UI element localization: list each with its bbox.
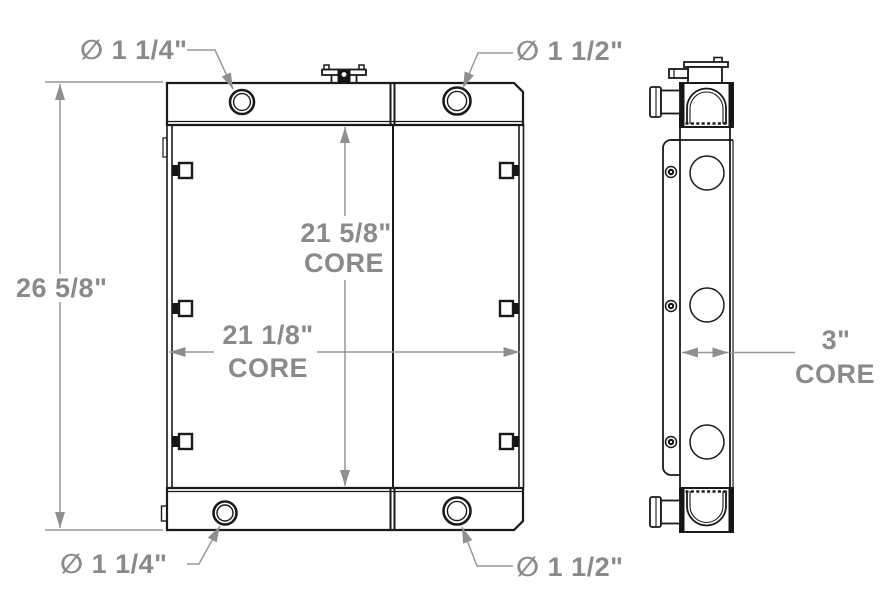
lightening-hole (690, 156, 724, 190)
core-height-word: CORE (304, 248, 384, 278)
mounting-clip (500, 434, 520, 449)
mounting-clip (173, 434, 193, 449)
port-callout-bottom-right: ∅ 1 1/2" (516, 552, 623, 582)
side-view (650, 58, 733, 533)
core-width-word: CORE (228, 353, 308, 383)
core-depth-word: CORE (795, 359, 875, 389)
bolt-head (666, 437, 677, 448)
leader-bottom-left (187, 526, 220, 564)
core-depth-value: 3" (822, 325, 851, 355)
technical-drawing-canvas: ∅ 1 1/4" ∅ 1 1/2" 26 5/8" 21 5/8" CORE 2… (0, 0, 886, 602)
port-callout-top-left: ∅ 1 1/4" (80, 35, 187, 65)
mounting-clip (500, 163, 520, 178)
front-view (162, 65, 524, 530)
lightening-hole (690, 425, 724, 459)
port-callout-top-right: ∅ 1 1/2" (516, 36, 623, 66)
mounting-clip (173, 301, 193, 316)
leader-bottom-right (462, 527, 513, 566)
port-bottom-right (444, 498, 471, 525)
left-side-channel (167, 125, 172, 488)
overflow-spout (669, 69, 688, 78)
side-port-stub-bottom (650, 497, 680, 527)
port-top-left (230, 90, 254, 114)
port-callout-bottom-left: ∅ 1 1/4" (60, 549, 167, 579)
mounting-clip (500, 301, 520, 316)
side-top-tank (680, 83, 733, 127)
side-port-stub-top (650, 87, 680, 117)
core-height-value: 21 5/8" (300, 218, 391, 248)
mounting-clips-right (500, 163, 520, 449)
bolt-head (666, 301, 677, 312)
overall-height-label: 26 5/8" (16, 273, 107, 303)
mounting-clips-left (173, 163, 193, 449)
right-side-channel (519, 125, 524, 488)
port-top-right (444, 88, 471, 115)
filler-neck (322, 65, 366, 83)
side-bottom-tank (680, 488, 733, 532)
core-width-value: 21 1/8" (222, 320, 313, 350)
bolt-head (666, 167, 677, 178)
dim-overall-height (45, 82, 163, 530)
filler-cap (669, 58, 728, 84)
lightening-hole (690, 288, 724, 322)
mounting-clip (173, 163, 193, 178)
radiator-dimension-drawing: ∅ 1 1/4" ∅ 1 1/2" 26 5/8" 21 5/8" CORE 2… (0, 0, 886, 602)
port-bottom-left (214, 502, 237, 525)
